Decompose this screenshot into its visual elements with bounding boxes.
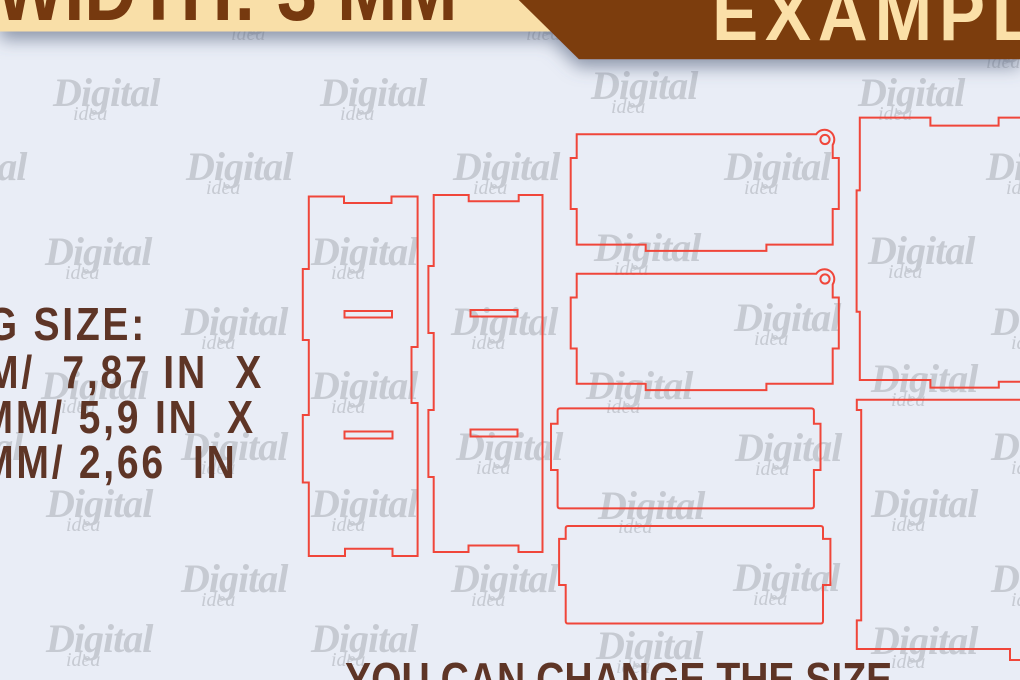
svg-text:YOU CAN CHANGE THE SIZE: YOU CAN CHANGE THE SIZE	[345, 654, 892, 680]
svg-text:WIDTH: 3 MM: WIDTH: 3 MM	[0, 0, 457, 38]
svg-text:EXAMPLE: EXAMPLE	[712, 0, 1020, 57]
svg-text:MM/ 5,9 IN X: MM/ 5,9 IN X	[0, 392, 256, 444]
svg-text:MM/ 2,66 IN: MM/ 2,66 IN	[0, 437, 237, 489]
svg-text:NG SIZE:: NG SIZE:	[0, 299, 147, 351]
svg-text:M/ 7,87 IN X: M/ 7,87 IN X	[0, 347, 264, 399]
